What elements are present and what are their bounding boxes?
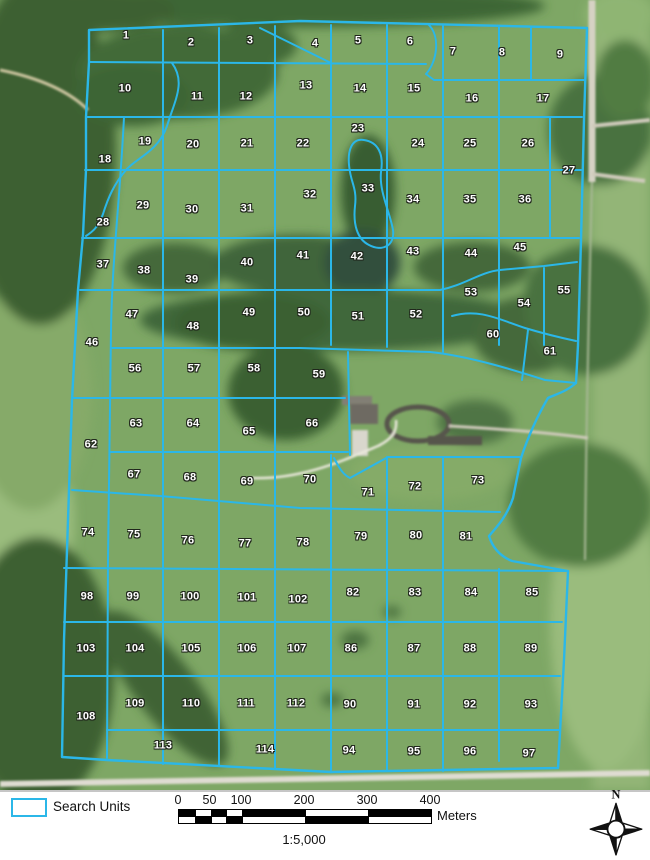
scale-segment	[242, 817, 305, 824]
legend-bar: Search Units 050100200300400 Meters 1:5,…	[0, 790, 650, 854]
scale-tick-label: 400	[420, 793, 441, 807]
map-ratio-text: 1:5,000	[178, 832, 430, 847]
scale-segment	[368, 817, 431, 824]
north-arrow: N	[584, 786, 648, 860]
search-units-swatch	[11, 798, 47, 817]
scale-bar: 050100200300400 Meters 1:5,000	[178, 792, 430, 856]
scale-tick-label: 100	[231, 793, 252, 807]
scale-bar-unit-label: Meters	[437, 808, 477, 823]
scale-segment	[305, 817, 368, 824]
scale-tick-label: 50	[203, 793, 217, 807]
aerial-imagery	[0, 0, 650, 790]
north-arrow-label: N	[612, 787, 621, 801]
compass-star	[590, 803, 641, 854]
scale-tick-label: 200	[294, 793, 315, 807]
scale-segment	[195, 817, 211, 824]
map-canvas: 1234567891011121314151617181920212223242…	[0, 0, 650, 790]
scale-bar-blocks	[178, 809, 432, 824]
search-units-label: Search Units	[53, 799, 130, 814]
scale-tick-label: 0	[175, 793, 182, 807]
scale-segment	[211, 817, 227, 824]
scale-segment	[226, 817, 242, 824]
scale-segment	[179, 817, 195, 824]
scale-tick-label: 300	[357, 793, 378, 807]
